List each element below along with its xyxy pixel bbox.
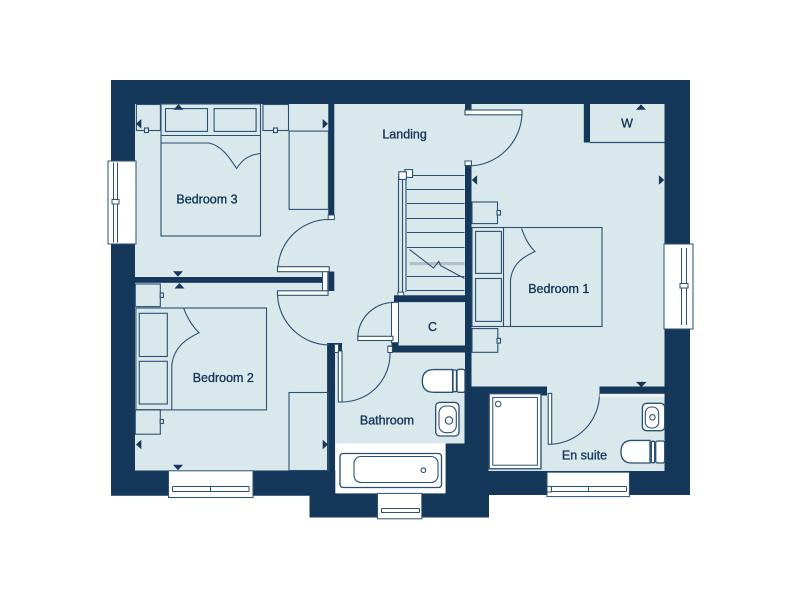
svg-text:C: C	[428, 320, 437, 334]
svg-text:En suite: En suite	[562, 449, 607, 463]
svg-text:Bathroom: Bathroom	[360, 414, 414, 428]
svg-text:Bedroom 2: Bedroom 2	[193, 371, 254, 385]
svg-text:Bedroom 3: Bedroom 3	[176, 193, 237, 207]
svg-text:Bedroom 1: Bedroom 1	[528, 282, 589, 296]
svg-text:W: W	[621, 117, 633, 131]
svg-text:Landing: Landing	[382, 128, 427, 142]
